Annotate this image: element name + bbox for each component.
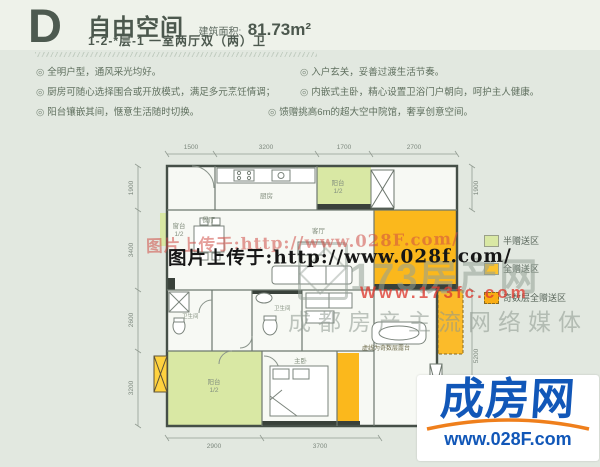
bullet-icon: ◎ — [268, 107, 276, 118]
dim-top-1: 3200 — [259, 144, 274, 151]
room-label-bottom-balcony: 阳台 — [208, 377, 221, 386]
room-label-bath-left: 卫生间 — [182, 312, 199, 320]
dim-left-0: 1900 — [128, 180, 135, 195]
bullet-icon: ◎ — [36, 87, 44, 98]
legend-label: 奇数层全赠送区 — [503, 291, 566, 304]
room-label-bay-window: 窗台 — [173, 221, 186, 230]
dim-top-3: 2700 — [407, 144, 422, 151]
room-frac-bottom-balcony: 1/2 — [209, 387, 218, 394]
legend-item-odd-floor-gift: 奇数层全赠送区 — [484, 291, 566, 304]
header: D 自由空间 建筑面积: 81.73m² 1-2-*层-1 一室两厅双（两）卫 — [0, 0, 600, 52]
dim-left-2: 2600 — [128, 312, 135, 327]
bullet-icon: ◎ — [300, 67, 308, 78]
bed-icon — [270, 366, 328, 416]
feature-text: 全明户型，通风采光均好。 — [47, 67, 161, 78]
chengfang-logo: 成房网 www.028F.com — [417, 375, 599, 461]
feature-text: 内嵌式主卧，精心设置卫浴门户朝向，呵护主人健康。 — [311, 87, 539, 98]
room-label-top-balcony: 阳台 — [332, 178, 345, 187]
dims-top — [165, 151, 459, 157]
odd-floor-terrace — [438, 290, 463, 354]
top-balcony — [317, 166, 371, 210]
dim-left-3: 3200 — [128, 380, 135, 395]
feature-item: ◎馈赠挑高6m的超大空中院馆，奢享创意空间。 — [268, 104, 473, 118]
room-label-master: 主卧 — [294, 356, 308, 365]
plan-letter: D — [28, 2, 62, 50]
bathtub-icon — [372, 322, 426, 344]
feature-text: 馈赠挑高6m的超大空中院馆，奢享创意空间。 — [279, 107, 473, 118]
logo-name: 成房网 — [415, 377, 600, 423]
room-frac-top-balcony: 1/2 — [333, 188, 342, 195]
room-label-dining: 餐厅 — [202, 215, 216, 224]
shower-icon — [169, 292, 189, 312]
dims-bottom — [165, 435, 382, 441]
bullet-icon: ◎ — [36, 67, 44, 78]
bullet-icon: ◎ — [300, 87, 308, 98]
watermark-upload-black: 图片上传于:http://www.028f.com/ — [168, 242, 512, 270]
dim-top-2: 1700 — [337, 144, 352, 151]
scanned-floorplan-page: D 自由空间 建筑面积: 81.73m² 1-2-*层-1 一室两厅双（两）卫 … — [0, 0, 600, 467]
feature-item: ◎阳台镶嵌其间，惬意生活随时切换。 — [36, 104, 199, 118]
hatch-divider — [35, 52, 317, 57]
window-hatch-left — [154, 356, 167, 392]
dim-bottom-1: 3700 — [313, 443, 328, 450]
dim-top-0: 1500 — [184, 144, 199, 151]
room-label-kitchen: 厨房 — [260, 191, 273, 200]
kitchen-counter-icon — [217, 168, 315, 183]
feature-item: ◎厨房可随心选择围合或开放模式，满足多元烹饪情调； — [36, 84, 275, 98]
feature-text: 厨房可随心选择围合或开放模式，满足多元烹饪情调； — [47, 87, 275, 98]
terrace-note: 虚线为奇数层露台 — [362, 344, 410, 352]
feature-item: ◎内嵌式主卧，精心设置卫浴门户朝向，呵护主人健康。 — [300, 84, 539, 98]
dim-right-1: 5200 — [473, 348, 480, 363]
odd-floor-gift-swatch — [484, 292, 499, 304]
gift-strip — [337, 353, 359, 421]
room-label-bath-right: 卫生间 — [274, 304, 291, 312]
feature-item: ◎入户玄关，妥善过渡生活节奏。 — [300, 64, 444, 78]
feature-text: 阳台镶嵌其间，惬意生活随时切换。 — [47, 107, 199, 118]
bullet-icon: ◎ — [36, 107, 44, 118]
dim-left-1: 3400 — [128, 242, 135, 257]
shaft — [371, 170, 394, 208]
features-list: ◎全明户型，通风采光均好。 ◎厨房可随心选择围合或开放模式，满足多元烹饪情调； … — [0, 60, 600, 136]
dim-right-0: 1900 — [473, 180, 480, 195]
plan-subtitle: 1-2-*层-1 一室两厅双（两）卫 — [88, 32, 266, 49]
dim-bottom-0: 2900 — [207, 443, 222, 450]
dims-left — [135, 164, 141, 428]
feature-text: 入户玄关，妥善过渡生活节奏。 — [311, 67, 444, 78]
feature-item: ◎全明户型，通风采光均好。 — [36, 64, 161, 78]
logo-url: www.028F.com — [417, 429, 599, 450]
